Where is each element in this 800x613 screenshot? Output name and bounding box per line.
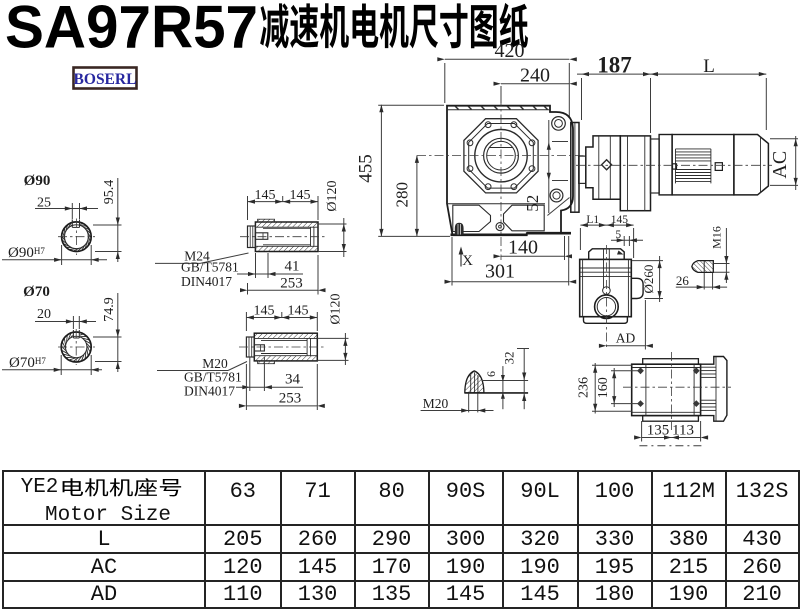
svg-text:253: 253 bbox=[280, 276, 303, 292]
svg-text:L1: L1 bbox=[586, 214, 599, 226]
svg-text:Ø90: Ø90 bbox=[24, 173, 51, 189]
svg-text:Ø90H7: Ø90H7 bbox=[8, 245, 45, 261]
svg-text:95.4: 95.4 bbox=[102, 180, 117, 205]
svg-text:Ø120: Ø120 bbox=[325, 180, 340, 211]
svg-text:34: 34 bbox=[285, 372, 301, 388]
svg-text:52: 52 bbox=[523, 195, 542, 212]
svg-text:X: X bbox=[462, 253, 473, 269]
svg-text:GB/T5781: GB/T5781 bbox=[184, 370, 242, 385]
svg-text:DIN4017: DIN4017 bbox=[184, 384, 235, 399]
svg-text:280: 280 bbox=[393, 182, 412, 208]
svg-text:26: 26 bbox=[676, 273, 690, 288]
svg-text:SA97R57: SA97R57 bbox=[5, 0, 258, 60]
svg-text:AD: AD bbox=[616, 331, 636, 346]
svg-text:20: 20 bbox=[37, 307, 51, 322]
svg-text:253: 253 bbox=[279, 391, 302, 407]
svg-text:Motor Size: Motor Size bbox=[45, 504, 171, 527]
svg-text:236: 236 bbox=[576, 377, 591, 398]
svg-text:YE2: YE2 bbox=[21, 476, 59, 499]
svg-text:M16: M16 bbox=[710, 226, 724, 249]
svg-text:M20: M20 bbox=[423, 396, 449, 411]
svg-text:Ø70: Ø70 bbox=[23, 284, 50, 300]
svg-text:455: 455 bbox=[356, 154, 377, 183]
svg-text:145: 145 bbox=[288, 304, 309, 319]
svg-text:Ø120: Ø120 bbox=[329, 293, 344, 324]
svg-text:Ø260: Ø260 bbox=[641, 265, 656, 294]
svg-text:41: 41 bbox=[285, 259, 300, 275]
svg-text:301: 301 bbox=[485, 261, 515, 283]
svg-text:160: 160 bbox=[596, 377, 611, 398]
svg-text:GB/T5781: GB/T5781 bbox=[181, 260, 239, 275]
svg-text:145: 145 bbox=[290, 188, 311, 203]
svg-text:145: 145 bbox=[254, 304, 275, 319]
svg-text:6: 6 bbox=[484, 371, 498, 377]
svg-text:74.9: 74.9 bbox=[102, 297, 117, 322]
svg-text:420: 420 bbox=[495, 40, 525, 62]
svg-text:140: 140 bbox=[508, 237, 538, 259]
svg-text:DIN4017: DIN4017 bbox=[181, 274, 232, 289]
svg-text:BOSERL: BOSERL bbox=[74, 71, 137, 88]
svg-text:Ø70H7: Ø70H7 bbox=[9, 355, 46, 371]
svg-text:AC: AC bbox=[769, 151, 791, 179]
svg-text:32: 32 bbox=[502, 352, 517, 365]
svg-text:145: 145 bbox=[255, 188, 276, 203]
svg-text:113: 113 bbox=[672, 423, 694, 439]
